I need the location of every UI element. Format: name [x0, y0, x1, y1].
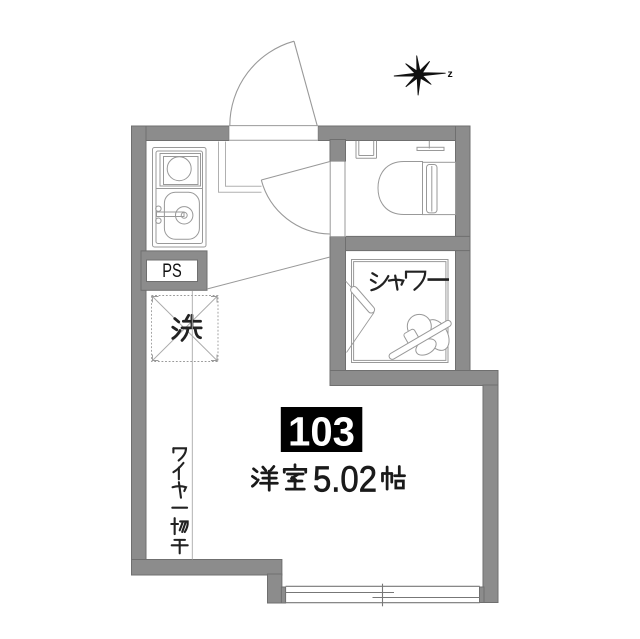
svg-text:z: z — [448, 68, 453, 80]
svg-text:103: 103 — [288, 408, 355, 454]
svg-text:5.02: 5.02 — [313, 458, 377, 499]
svg-text:PS: PS — [162, 261, 182, 282]
